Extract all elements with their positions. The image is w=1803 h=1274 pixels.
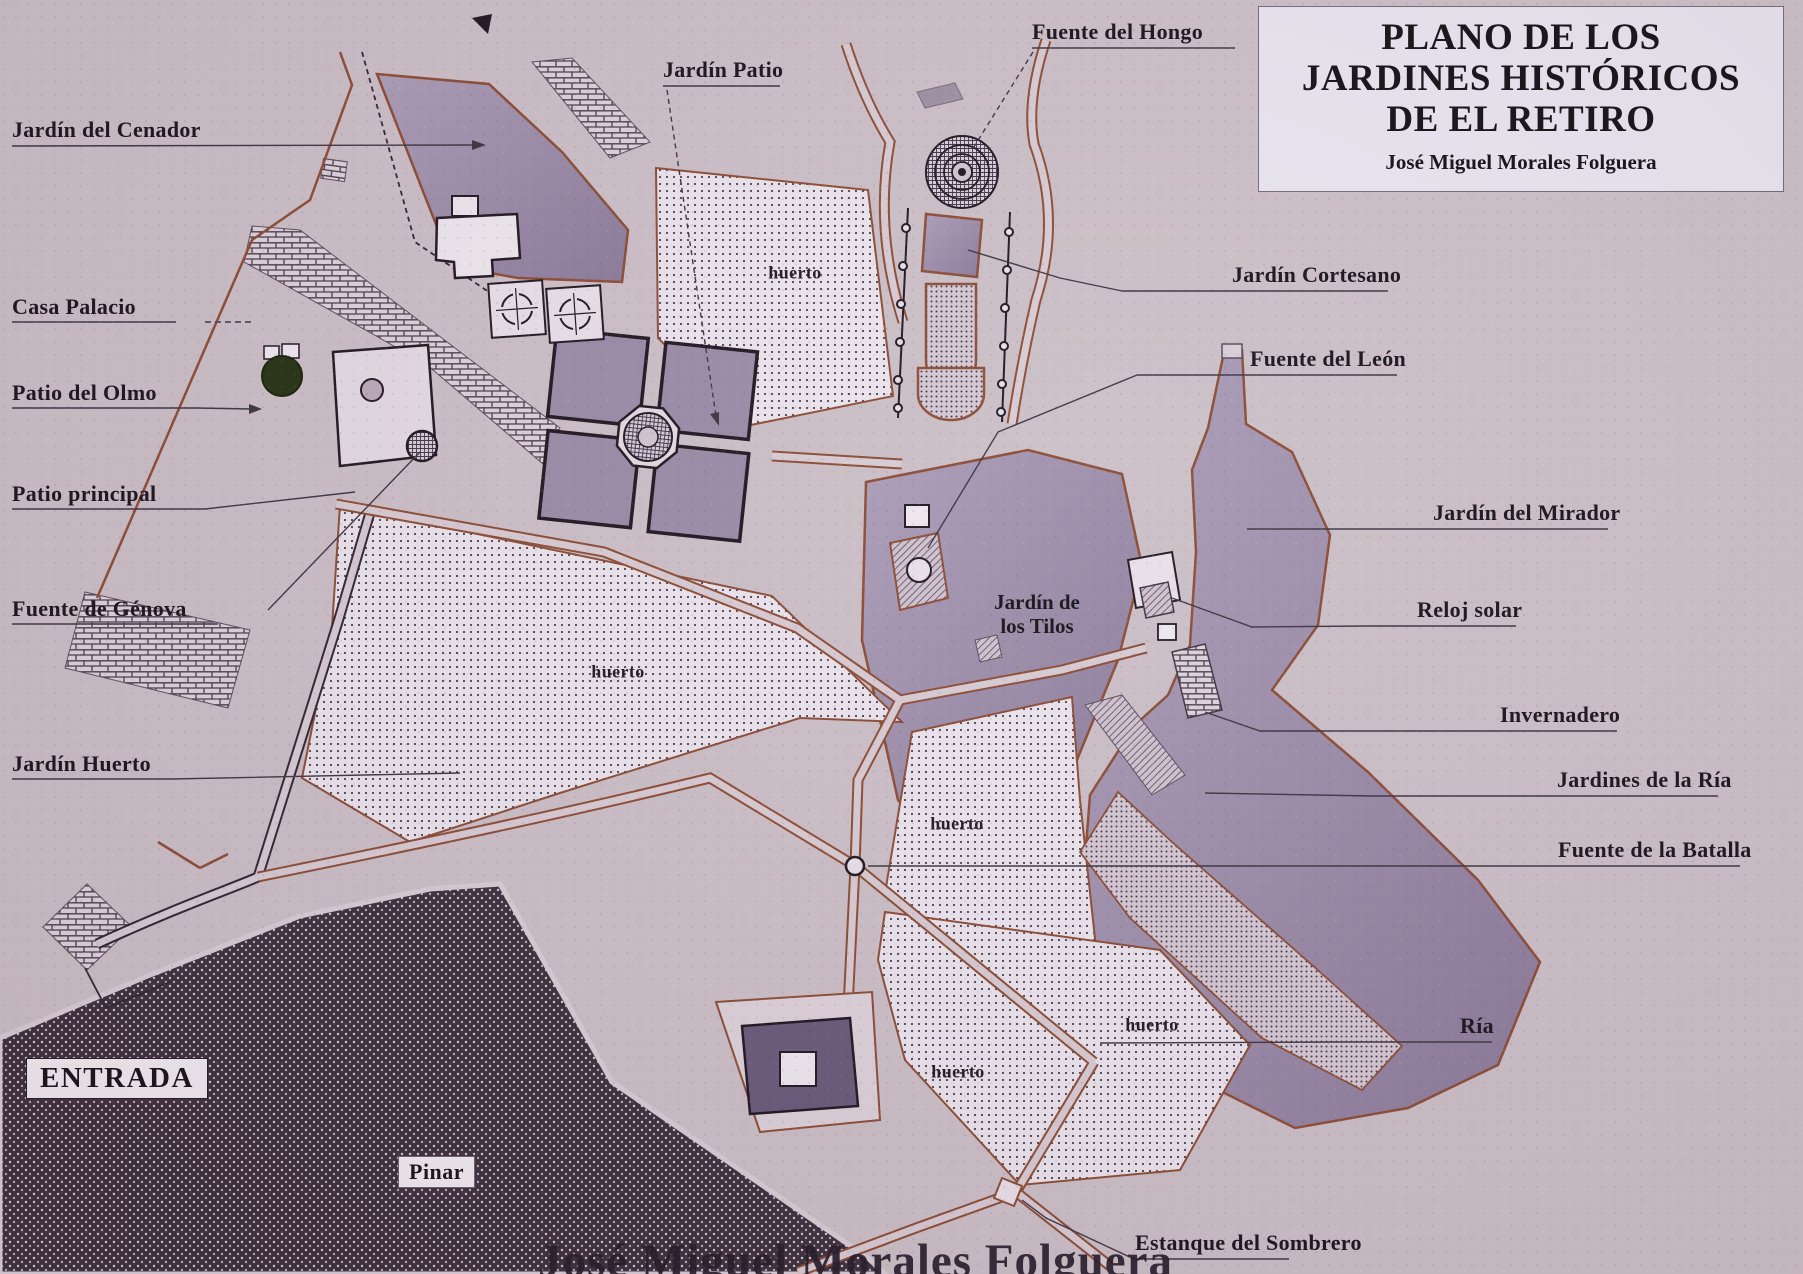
map-title-line1: PLANO DE LOS	[1259, 17, 1783, 58]
label-fuente-del-hongo: Fuente del Hongo	[1032, 20, 1203, 44]
label-casa-palacio: Casa Palacio	[12, 295, 136, 319]
label-invernadero: Invernadero	[1500, 703, 1620, 727]
retiro-historic-gardens-map: PLANO DE LOS JARDINES HISTÓRICOS DE EL R…	[0, 0, 1803, 1274]
map-title-line3: DE EL RETIRO	[1259, 99, 1783, 140]
area-label-huerto-north: huerto	[768, 263, 821, 284]
area-label-jardin-de-los-tilos: Jardín de los Tilos	[994, 590, 1080, 638]
area-label-huerto-central: huerto	[591, 662, 644, 683]
tilos-line2: los Tilos	[994, 614, 1080, 638]
map-title-line2: JARDINES HISTÓRICOS	[1259, 58, 1783, 99]
label-jardin-huerto: Jardín Huerto	[12, 752, 151, 776]
label-fuente-de-la-batalla: Fuente de la Batalla	[1558, 838, 1752, 862]
map-author: José Miguel Morales Folguera	[1259, 150, 1783, 175]
label-jardin-del-cenador: Jardín del Cenador	[12, 118, 201, 142]
watermark-author: José Miguel Morales Folguera	[538, 1234, 1173, 1274]
label-fuente-de-genova: Fuente de Génova	[12, 597, 187, 621]
label-patio-del-olmo: Patio del Olmo	[12, 381, 157, 405]
label-entrada: ENTRADA	[26, 1058, 208, 1099]
label-ria: Ría	[1460, 1014, 1494, 1038]
tilos-line1: Jardín de	[994, 590, 1080, 614]
label-jardin-cortesano: Jardín Cortesano	[1232, 263, 1401, 287]
title-box: PLANO DE LOS JARDINES HISTÓRICOS DE EL R…	[1258, 6, 1784, 192]
label-jardin-del-mirador: Jardín del Mirador	[1433, 501, 1621, 525]
area-label-huerto-south: huerto	[931, 1062, 984, 1083]
area-label-huerto-east: huerto	[930, 814, 983, 835]
label-reloj-solar: Reloj solar	[1417, 598, 1522, 622]
label-jardines-de-la-ria: Jardines de la Ría	[1557, 768, 1732, 792]
label-fuente-del-leon: Fuente del León	[1250, 347, 1406, 371]
label-patio-principal: Patio principal	[12, 482, 156, 506]
area-label-huerto-ria: huerto	[1125, 1015, 1178, 1036]
label-jardin-patio: Jardín Patio	[663, 58, 783, 82]
label-pinar: Pinar	[398, 1156, 475, 1188]
